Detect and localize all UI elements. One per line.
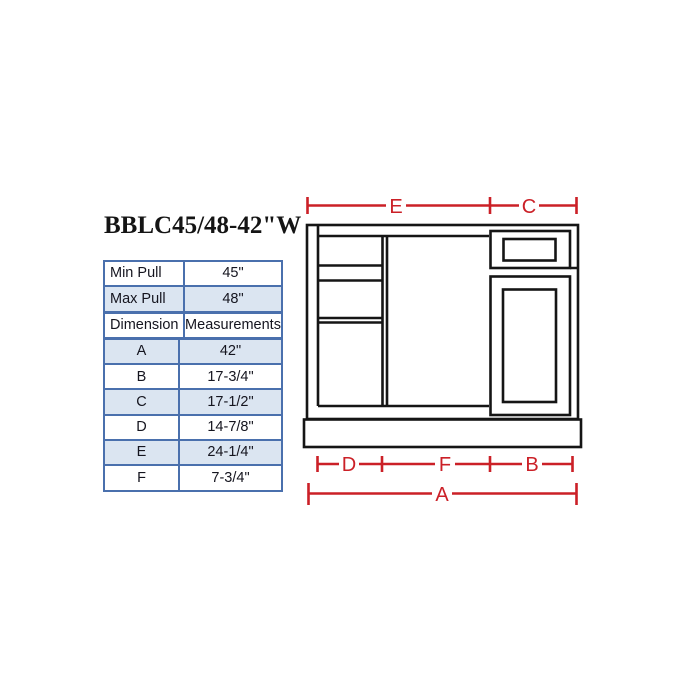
dimension-label-e: E — [389, 196, 402, 218]
cabinet-diagram: E C D F B A — [0, 0, 700, 700]
dimension-label-d: D — [342, 454, 356, 476]
door-panel — [503, 290, 556, 403]
dimension-label-c: C — [522, 196, 536, 218]
dimension-line-overall: A — [308, 483, 577, 506]
dimension-line-bottom: D F B — [317, 453, 573, 476]
face-frame-lines — [318, 225, 578, 406]
cabinet-front-view — [304, 225, 581, 447]
top-drawer-panel — [504, 239, 556, 261]
dimension-label-a: A — [435, 484, 449, 506]
dimension-label-b: B — [525, 454, 538, 476]
toe-kick — [304, 420, 581, 448]
dimension-line-top: E C — [307, 194, 577, 218]
dimension-label-f: F — [439, 454, 451, 476]
